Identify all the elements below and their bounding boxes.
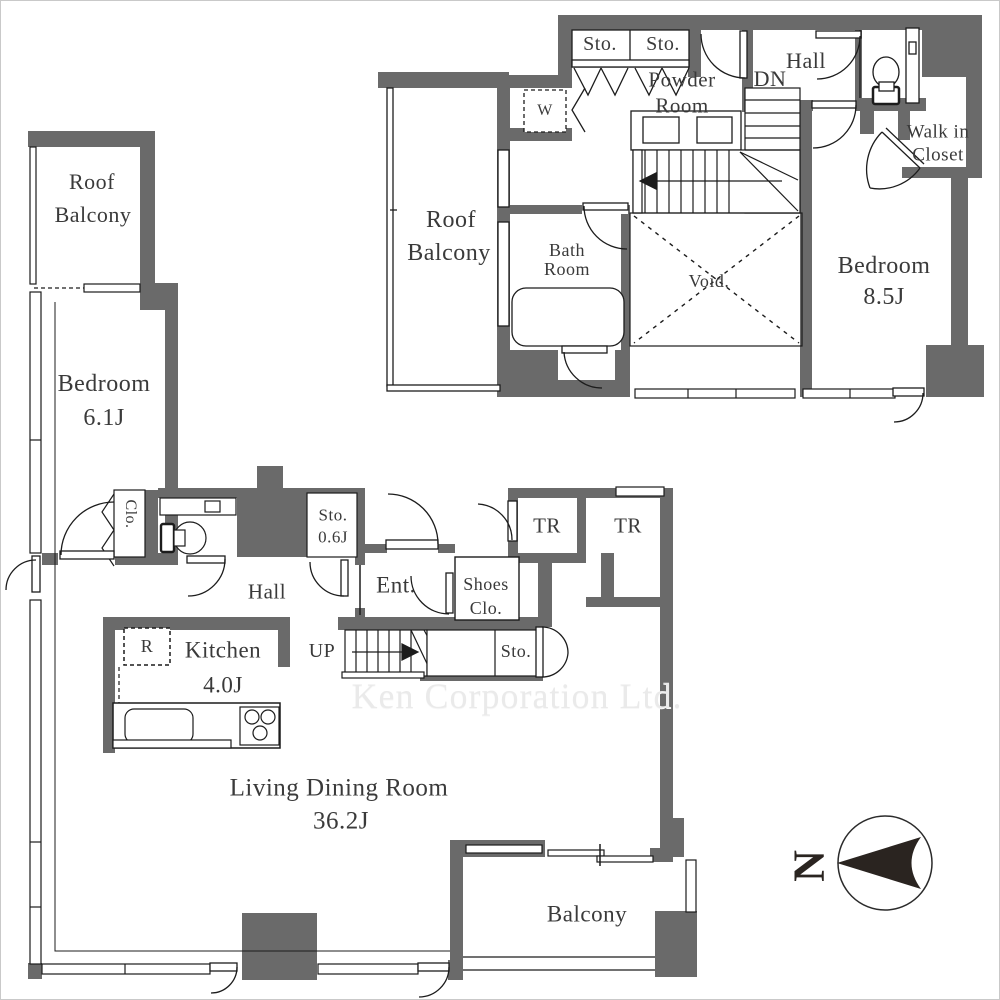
- label-upper-roof-balcony-2: Balcony: [407, 241, 490, 265]
- upper-windows: [635, 389, 895, 398]
- toilet-lid: [174, 530, 185, 546]
- label-kitchen-name: Kitchen: [185, 639, 261, 662]
- label-upper-storage-right: Sto.: [646, 34, 680, 54]
- window: [616, 487, 664, 496]
- label-refrigerator: R: [141, 637, 154, 655]
- label-lower-bedroom-size: 6.1J: [83, 406, 124, 430]
- window: [30, 292, 41, 553]
- label-upper-bedroom-name: Bedroom: [838, 254, 931, 278]
- floor-plan-drawing: [0, 0, 1000, 1000]
- label-walk-in-closet-2: Closet: [912, 146, 964, 165]
- label-kitchen-size: 4.0J: [203, 674, 243, 697]
- window: [466, 845, 542, 853]
- kitchen-sink-icon: [125, 709, 193, 743]
- window: [30, 600, 41, 964]
- window: [84, 284, 140, 292]
- label-trunk-room-right: TR: [614, 516, 642, 537]
- label-shoes-closet-2: Clo.: [470, 599, 503, 617]
- label-living-dining-size: 36.2J: [313, 809, 369, 834]
- label-entrance: Ent.: [376, 574, 416, 597]
- label-upper-bedroom-size: 8.5J: [863, 285, 904, 309]
- label-closet: Clo.: [122, 499, 138, 528]
- label-stairs-down: DN: [754, 68, 787, 90]
- label-lower-storage: Sto.: [501, 642, 532, 660]
- window: [498, 222, 509, 326]
- label-stairs-up: UP: [309, 641, 336, 661]
- label-lower-roof-balcony-1: Roof: [69, 171, 115, 193]
- washer-bifold-door-icon: [572, 88, 585, 132]
- door-handle: [909, 42, 916, 54]
- toilet-shelf: [160, 498, 236, 515]
- label-upper-hall: Hall: [786, 50, 826, 72]
- label-washer: W: [537, 103, 553, 119]
- label-storage-06-2: 0.6J: [318, 529, 348, 546]
- sink-icon: [643, 117, 679, 143]
- railing: [686, 860, 696, 912]
- label-bath-room-1: Bath: [549, 241, 585, 259]
- label-void: Void.: [689, 272, 730, 290]
- label-powder-room-1: Powder: [648, 70, 715, 91]
- label-lower-roof-balcony-2: Balcony: [55, 204, 132, 226]
- label-storage-06-1: Sto.: [319, 507, 348, 524]
- window: [318, 964, 418, 974]
- toilet-tank: [161, 524, 174, 552]
- sliding-window: [548, 850, 604, 856]
- window: [42, 964, 210, 974]
- window: [498, 150, 509, 207]
- sliding-door: [906, 28, 919, 103]
- compass-north-label: N: [784, 850, 835, 882]
- storage-bifold-door-icon: [574, 68, 628, 95]
- sliding-window: [597, 856, 653, 862]
- storage-box: [307, 493, 357, 557]
- label-balcony: Balcony: [547, 903, 627, 926]
- label-lower-hall: Hall: [248, 582, 286, 603]
- watermark: Ken Corporation Ltd.: [352, 675, 683, 717]
- label-bath-room-2: Room: [544, 260, 590, 278]
- label-upper-storage-left: Sto.: [583, 34, 617, 54]
- bathtub-icon: [512, 288, 624, 346]
- label-lower-bedroom-name: Bedroom: [58, 372, 151, 396]
- label-living-dining-name: Living Dining Room: [230, 776, 449, 801]
- sink-icon: [697, 117, 732, 143]
- label-trunk-room-left: TR: [533, 516, 561, 537]
- label-walk-in-closet-1: Walk in: [907, 123, 970, 142]
- compass: [837, 816, 932, 910]
- railing: [387, 88, 393, 386]
- floor-plan: Sto. Sto. Powder Room DN Hall W Walk in …: [0, 0, 1000, 1000]
- toilet-lid: [879, 82, 894, 91]
- label-shoes-closet-1: Shoes: [463, 575, 509, 593]
- railing: [30, 147, 36, 284]
- label-powder-room-2: Room: [655, 96, 708, 117]
- railing: [387, 385, 500, 391]
- label-upper-roof-balcony-1: Roof: [426, 208, 476, 232]
